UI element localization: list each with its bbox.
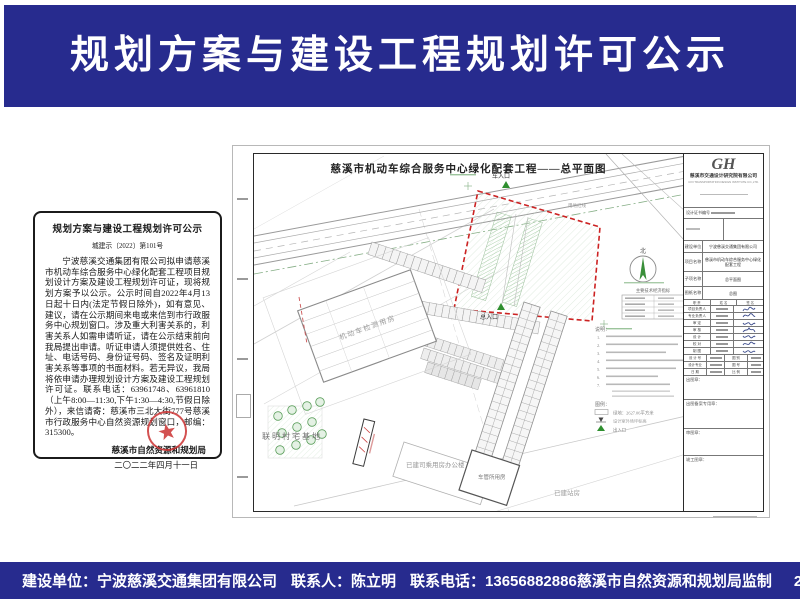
svg-text:2.: 2. xyxy=(597,343,600,348)
header-banner: 规划方案与建设工程规划许可公示 xyxy=(4,5,796,107)
office-label: 已建司乘用房办公楼 xyxy=(406,460,465,469)
sheet-footnote xyxy=(713,516,757,518)
info-row: 建设单位 宁波慈溪交通集团有限公司 xyxy=(684,241,763,253)
notice-doc-number: 城建示〔2022〕第101号 xyxy=(45,240,210,250)
page-title: 规划方案与建设工程规划许可公示 xyxy=(4,5,796,107)
gh-logo-icon: GH xyxy=(684,156,763,174)
svg-text:出入口: 出入口 xyxy=(613,427,626,434)
village-label: 联明村宅基地 xyxy=(262,431,322,441)
title-block: GH 慈溪市交通设计研究院有限公司 CIXI TRANSPORTATION DE… xyxy=(683,154,763,511)
footer-contact: 联系人：陈立明 xyxy=(291,570,396,591)
main-entrance-label: 总入口 xyxy=(480,313,498,321)
vehicle-admin-label: 车管所用房 xyxy=(478,473,506,481)
stamp-section: 审图章： xyxy=(684,429,763,456)
site-plan-canvas: 机动车检测用房 xyxy=(254,154,683,511)
cert-number-row: 设计证书编号 xyxy=(684,208,763,219)
footer-phone: 联系电话：13656882886 xyxy=(410,570,577,591)
legend-level-icon xyxy=(599,418,604,423)
meta-row: 日 期 比 例 xyxy=(684,369,763,376)
svg-text:绿地：2627.06平方米: 绿地：2627.06平方米 xyxy=(613,410,654,417)
footer-date: 2022年4月11日 xyxy=(794,570,800,591)
notice-box: 规划方案与建设工程规划许可公示 城建示〔2022〕第101号 宁波慈溪交通集团有… xyxy=(33,211,222,459)
vehicle-entrance-icon xyxy=(502,181,510,188)
signature-row: 制 图 xyxy=(684,348,763,355)
svg-text:3.: 3. xyxy=(597,351,600,356)
drawing-title: 慈溪市机动车综合服务中心绿化配套工程——总平面图 xyxy=(254,161,683,176)
red-line-label: 用地红线 xyxy=(568,202,586,209)
svg-text:7.: 7. xyxy=(597,383,600,388)
notice-date: 二〇二二年四月十一日 xyxy=(45,459,210,471)
design-firm-logo: GH 慈溪市交通设计研究院有限公司 CIXI TRANSPORTATION DE… xyxy=(684,154,763,208)
margin-tick xyxy=(237,198,248,200)
notes-block: 说明： 1. 2. 3. 4. 5. 6. 7. xyxy=(595,326,683,397)
svg-text:6.: 6. xyxy=(597,375,600,380)
svg-text:1.: 1. xyxy=(597,335,600,340)
signature-icon xyxy=(742,347,756,355)
station-label: 已建站房 xyxy=(554,488,580,497)
site-plan-svg: 机动车检测用房 xyxy=(254,154,683,511)
legend-green-swatch xyxy=(595,410,608,415)
svg-text:5.: 5. xyxy=(597,367,600,372)
info-row: 子项名称 总平面图 xyxy=(684,272,763,287)
blank-cells xyxy=(684,219,763,241)
footer-bar: 建设单位：宁波慈溪交通集团有限公司 联系人：陈立明 联系电话：136568828… xyxy=(0,562,800,599)
info-row: 项目名称 慈溪市机动车综合服务中心绿化配套工程 xyxy=(684,253,763,272)
legend-entrance-icon xyxy=(597,425,605,431)
indicator-table: 主要技术经济指标 xyxy=(622,282,683,319)
svg-text:图例：: 图例： xyxy=(595,401,610,408)
official-seal-icon xyxy=(145,409,189,453)
margin-tick xyxy=(237,278,248,280)
legend: 图例： 绿地：2627.06平方米 设计室外场坪标高 出入口 xyxy=(595,401,654,434)
north-arrow: 北 xyxy=(630,247,656,282)
meta-row: 设 计 号 图 别 xyxy=(684,355,763,362)
stamp-section: 出图章： xyxy=(684,376,763,400)
notice-title: 规划方案与建设工程规划许可公示 xyxy=(45,221,210,235)
design-firm-name-en: CIXI TRANSPORTATION DESIGN INSTITUTE CO.… xyxy=(684,180,763,184)
tree-cluster xyxy=(268,398,326,458)
stamp-section: 出图备案专用章： xyxy=(684,400,763,429)
svg-text:主要技术经济指标: 主要技术经济指标 xyxy=(636,287,671,294)
margin-tick xyxy=(237,358,248,360)
footer-builder: 建设单位：宁波慈溪交通集团有限公司 xyxy=(22,570,277,591)
stamp-section: 竣工图章： xyxy=(684,456,763,511)
svg-text:说明：: 说明： xyxy=(595,326,610,333)
north-label: 北 xyxy=(640,247,646,255)
footer-supervisor: 慈溪市自然资源和规划局监制 xyxy=(577,570,772,591)
meta-row: 设计专业 图 号 xyxy=(684,362,763,369)
site-plan-sheet: 机动车检测用房 xyxy=(232,145,770,518)
svg-text:4.: 4. xyxy=(597,359,600,364)
drawing-frame: 机动车检测用房 xyxy=(253,153,764,512)
svg-text:设计室外场坪标高: 设计室外场坪标高 xyxy=(613,418,647,425)
check-strip xyxy=(353,419,378,467)
margin-stamp-box xyxy=(236,394,251,418)
margin-tick xyxy=(237,476,248,478)
info-row: 图纸名称 总图 xyxy=(684,287,763,300)
inspection-building: 机动车检测用房 xyxy=(263,238,471,415)
